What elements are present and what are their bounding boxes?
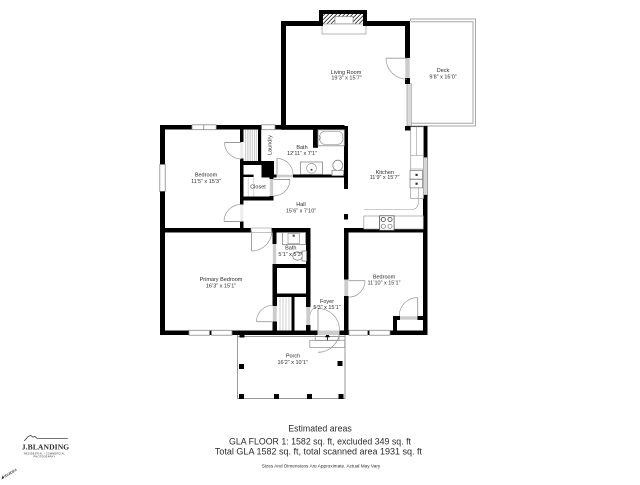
svg-text:Bath: Bath (285, 246, 296, 252)
svg-text:Porch: Porch (286, 354, 300, 360)
svg-text:16’2” x 10’1”: 16’2” x 10’1” (277, 360, 307, 366)
svg-text:Bedroom: Bedroom (373, 274, 396, 280)
svg-text:Bedroom: Bedroom (195, 173, 218, 179)
svg-text:5’3” x 15’1”: 5’3” x 15’1” (313, 305, 340, 311)
svg-text:Total GLA 1582 sq. ft, total s: Total GLA 1582 sq. ft, total scanned are… (215, 447, 423, 457)
svg-text:PHOTOGRAPHY: PHOTOGRAPHY (34, 456, 56, 459)
svg-text:Laundry: Laundry (267, 135, 273, 155)
svg-text:Primary Bedroom: Primary Bedroom (200, 277, 243, 283)
svg-text:Deck: Deck (437, 68, 450, 74)
svg-text:9’8” x 16’0”: 9’8” x 16’0” (429, 75, 456, 81)
svg-text:11’5” x 15’3”: 11’5” x 15’3” (191, 179, 221, 185)
svg-text:19’3” x 15’7”: 19’3” x 15’7” (331, 75, 361, 81)
svg-text:J.BLANDING: J.BLANDING (22, 442, 70, 451)
svg-text:Bath: Bath (296, 145, 307, 151)
svg-text:Closet: Closet (250, 185, 266, 191)
svg-text:Estimated areas: Estimated areas (288, 424, 352, 434)
svg-text:11’9” x 15’7”: 11’9” x 15’7” (370, 175, 400, 181)
svg-text:5’1” x 5’3”: 5’1” x 5’3” (278, 252, 302, 258)
svg-text:16’3” x 15’1”: 16’3” x 15’1” (206, 283, 236, 289)
svg-text:Sizes And Dimensions Are Appro: Sizes And Dimensions Are Approximate. Ac… (262, 464, 381, 469)
svg-text:Foyer: Foyer (320, 299, 334, 305)
svg-text:15’6” x 7’10”: 15’6” x 7’10” (286, 208, 316, 214)
svg-text:Hall: Hall (296, 202, 305, 208)
svg-text:GLA FLOOR 1: 1582 sq. ft, excl: GLA FLOOR 1: 1582 sq. ft, excluded 349 s… (229, 436, 411, 446)
svg-text:11’10” x 15’1”: 11’10” x 15’1” (368, 281, 401, 287)
svg-text:12’11” x 7’1”: 12’11” x 7’1” (287, 151, 317, 157)
